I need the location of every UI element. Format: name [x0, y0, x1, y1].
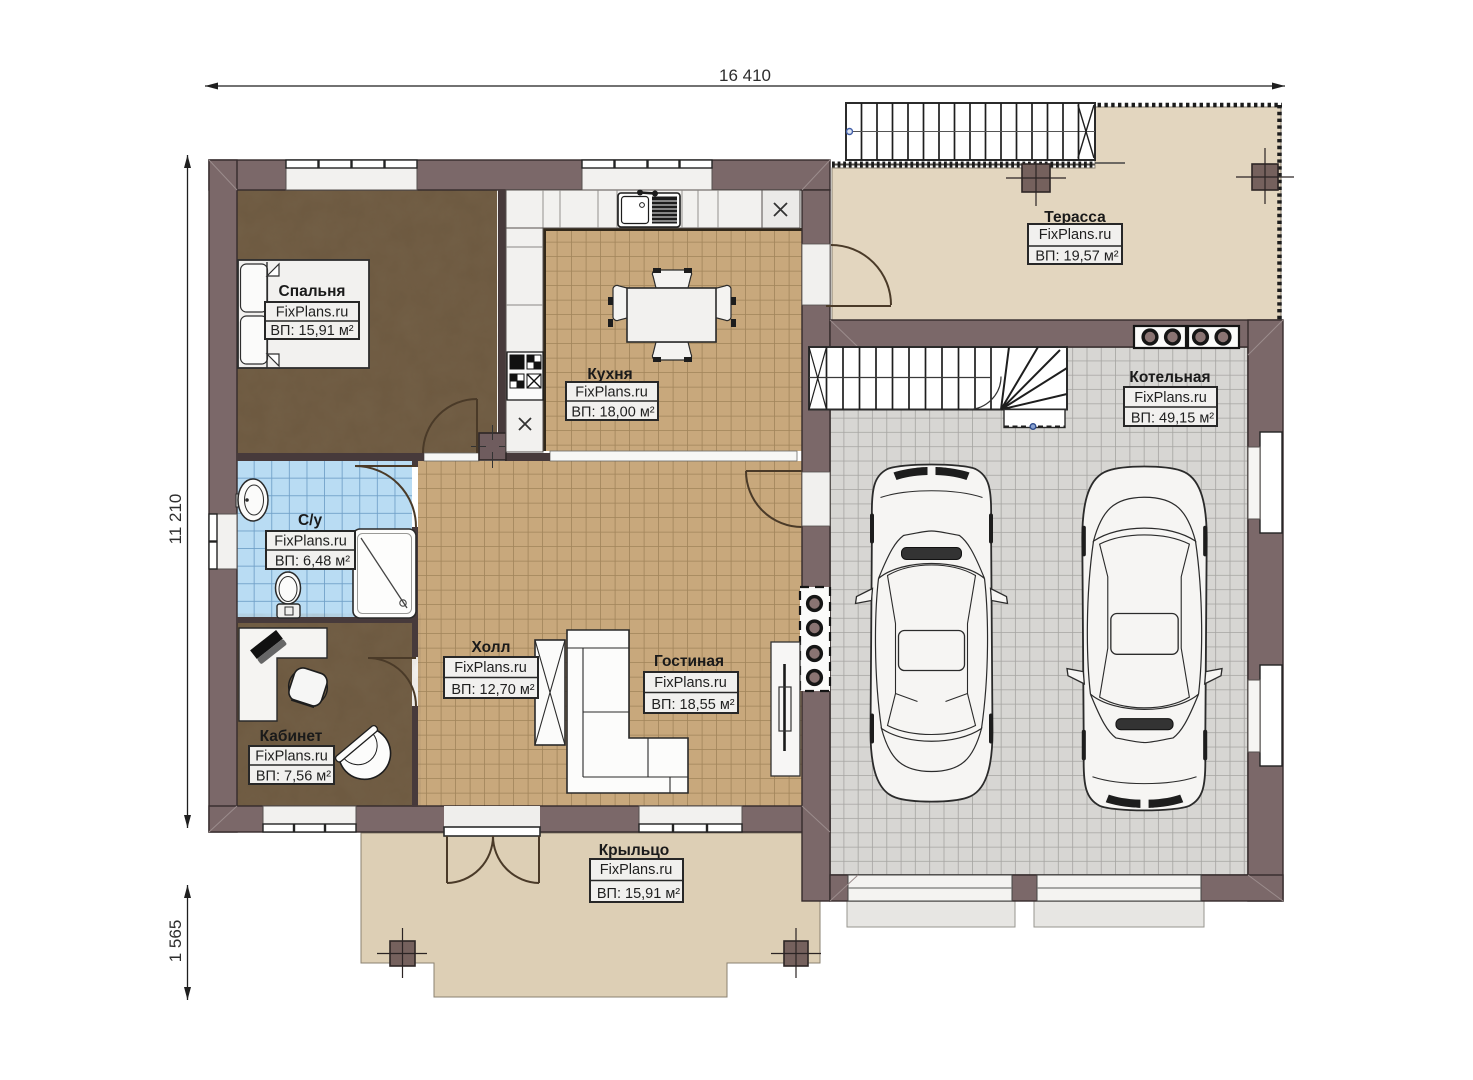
svg-text:FixPlans.ru: FixPlans.ru	[575, 385, 648, 401]
svg-text:FixPlans.ru: FixPlans.ru	[255, 749, 328, 765]
svg-text:FixPlans.ru: FixPlans.ru	[276, 305, 349, 321]
svg-text:11 210: 11 210	[166, 494, 185, 545]
svg-text:ВП: 15,91 м²: ВП: 15,91 м²	[597, 886, 680, 902]
svg-text:ВП: 18,00 м²: ВП: 18,00 м²	[571, 405, 654, 421]
svg-text:16 410: 16 410	[719, 66, 771, 85]
svg-text:ВП: 12,70 м²: ВП: 12,70 м²	[451, 682, 534, 698]
svg-text:ВП: 19,57 м²: ВП: 19,57 м²	[1035, 249, 1118, 265]
svg-text:Кабинет: Кабинет	[260, 728, 323, 745]
svg-text:Спальня: Спальня	[279, 283, 346, 300]
svg-text:FixPlans.ru: FixPlans.ru	[274, 534, 347, 550]
svg-text:ВП: 49,15 м²: ВП: 49,15 м²	[1131, 411, 1214, 427]
svg-text:Гостиная: Гостиная	[654, 653, 724, 670]
svg-text:ВП: 6,48 м²: ВП: 6,48 м²	[275, 554, 350, 570]
svg-text:1 565: 1 565	[166, 920, 185, 963]
svg-text:Крыльцо: Крыльцо	[599, 842, 670, 859]
svg-text:Кухня: Кухня	[587, 366, 632, 383]
svg-text:FixPlans.ru: FixPlans.ru	[654, 675, 727, 691]
svg-text:ВП: 18,55 м²: ВП: 18,55 м²	[651, 697, 734, 713]
svg-text:ВП: 15,91 м²: ВП: 15,91 м²	[270, 323, 353, 339]
svg-text:Холл: Холл	[472, 639, 511, 656]
svg-text:FixPlans.ru: FixPlans.ru	[1039, 227, 1112, 243]
svg-text:Котельная: Котельная	[1129, 369, 1210, 386]
svg-text:ВП: 7,56 м²: ВП: 7,56 м²	[256, 769, 331, 785]
svg-text:С/у: С/у	[298, 512, 323, 529]
svg-text:FixPlans.ru: FixPlans.ru	[454, 660, 527, 676]
svg-text:FixPlans.ru: FixPlans.ru	[1134, 390, 1207, 406]
svg-text:FixPlans.ru: FixPlans.ru	[600, 862, 673, 878]
